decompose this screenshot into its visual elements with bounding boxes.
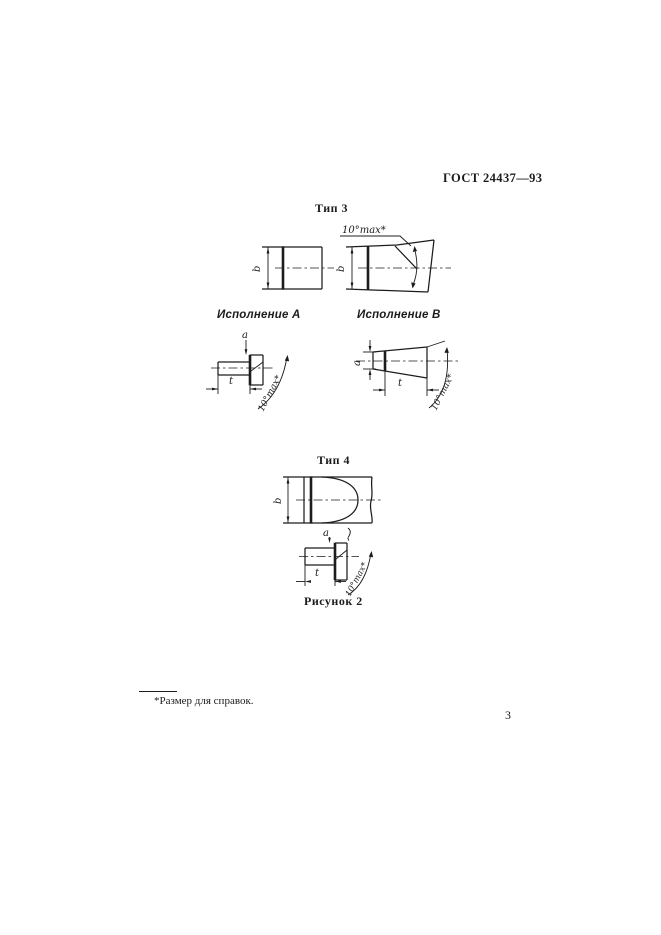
angle-dimension-arc: 10°max*	[429, 347, 457, 412]
type3-title: Тип 3	[315, 201, 348, 216]
type4-title: Тип 4	[317, 453, 350, 468]
dimension-b: b	[252, 247, 269, 289]
dim-t-label: t	[315, 568, 320, 579]
footnote-text: *Размер для справок.	[154, 695, 254, 707]
dim-t-label: t	[398, 378, 403, 389]
angle-dimension-arc: 10°max*	[344, 551, 373, 598]
dimension-a: а	[323, 528, 331, 543]
type3-variant-a-front-view: b	[250, 238, 345, 300]
type3-variant-b-front-view: 10°max* b	[338, 222, 458, 304]
dimension-a: а	[242, 330, 248, 355]
dimension-b: b	[273, 477, 289, 523]
dimension-b: b	[336, 247, 353, 289]
footnote-rule	[139, 691, 177, 692]
scanned-standard-page: ГОСТ 24437—93 Тип 3 b 10°max*	[0, 0, 661, 935]
dim-b-label: b	[336, 266, 347, 272]
dimension-t: t	[296, 565, 346, 586]
dim-b-label: b	[273, 498, 284, 504]
type3-variant-a-label: Исполнение А	[217, 309, 300, 321]
figure-caption: Рисунок 2	[304, 594, 363, 609]
angle-label: 10°max*	[430, 372, 457, 412]
dim-a-label: а	[242, 330, 248, 341]
outline	[346, 240, 434, 292]
standard-reference: ГОСТ 24437—93	[443, 171, 542, 186]
type3-variant-a-side-view: а t	[203, 328, 295, 418]
dim-b-label: b	[252, 266, 263, 272]
dim-a-label: а	[323, 528, 329, 539]
outline	[218, 355, 263, 385]
angle-label: 10°max*	[342, 225, 386, 236]
angle-dimension-arc: 10°max*	[257, 355, 289, 413]
dim-t-label: t	[229, 376, 234, 387]
type3-variant-b-label: Исполнение В	[357, 309, 440, 321]
angle-callout: 10°max*	[340, 225, 411, 246]
outline	[373, 341, 445, 378]
type3-variant-b-side-view: а t 10°ma	[348, 332, 466, 422]
outline	[305, 543, 347, 580]
angle-label: 10°max*	[257, 373, 285, 413]
angle-label: 10°max*	[344, 560, 371, 598]
page-number: 3	[505, 708, 511, 723]
